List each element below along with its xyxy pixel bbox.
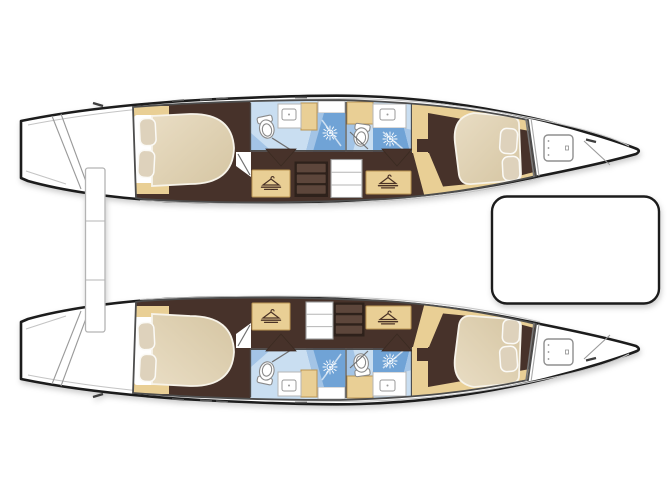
pillow bbox=[139, 118, 156, 146]
shower-shelf bbox=[318, 101, 345, 113]
wardrobe bbox=[366, 171, 411, 194]
catamaran-floorplan-canvas bbox=[0, 0, 667, 500]
stern-crossbeam-platform bbox=[86, 168, 106, 332]
foredeck-platform bbox=[492, 197, 659, 304]
bathroom-cabinet bbox=[347, 102, 373, 124]
port-drawer-unit bbox=[295, 162, 329, 198]
stbd-drawer-unit bbox=[334, 303, 365, 337]
bathroom-cabinet bbox=[301, 103, 317, 130]
wardrobe bbox=[252, 170, 290, 197]
pillow bbox=[499, 128, 518, 154]
pillow bbox=[502, 156, 520, 181]
catamaran-floorplan bbox=[0, 0, 667, 500]
stbd-companionway-steps bbox=[306, 302, 333, 339]
aft-berth-mattress bbox=[152, 114, 234, 186]
pillow bbox=[138, 150, 155, 178]
port-companionway-steps bbox=[331, 160, 362, 198]
